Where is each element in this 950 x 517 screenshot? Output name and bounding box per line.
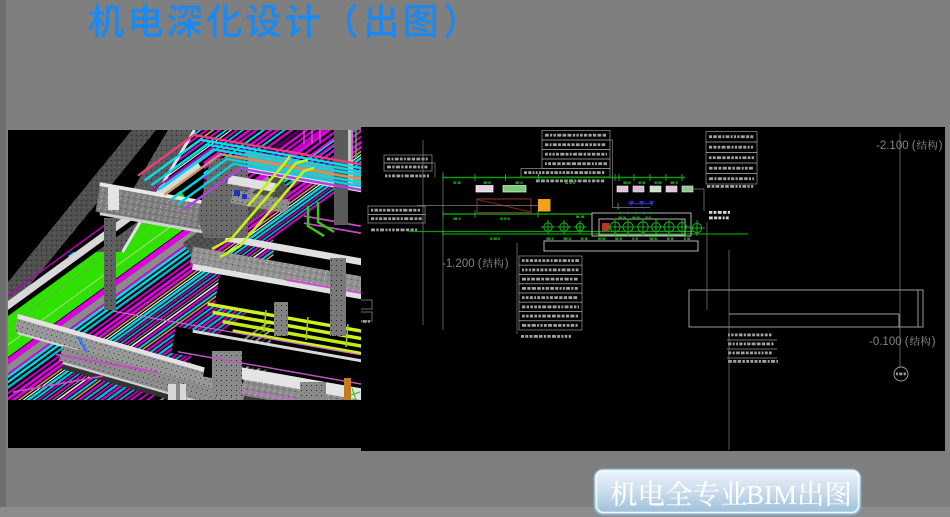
- svg-text:-0.100 (: -0.100 (: [869, 336, 909, 348]
- svg-text:-2.100 (: -2.100 (: [876, 140, 916, 152]
- svg-text:): ): [932, 336, 936, 348]
- svg-text:-1.200 (: -1.200 (: [442, 258, 482, 270]
- svg-text:BIM: BIM: [746, 480, 797, 510]
- svg-text:): ): [939, 140, 943, 152]
- svg-text:): ): [505, 258, 509, 270]
